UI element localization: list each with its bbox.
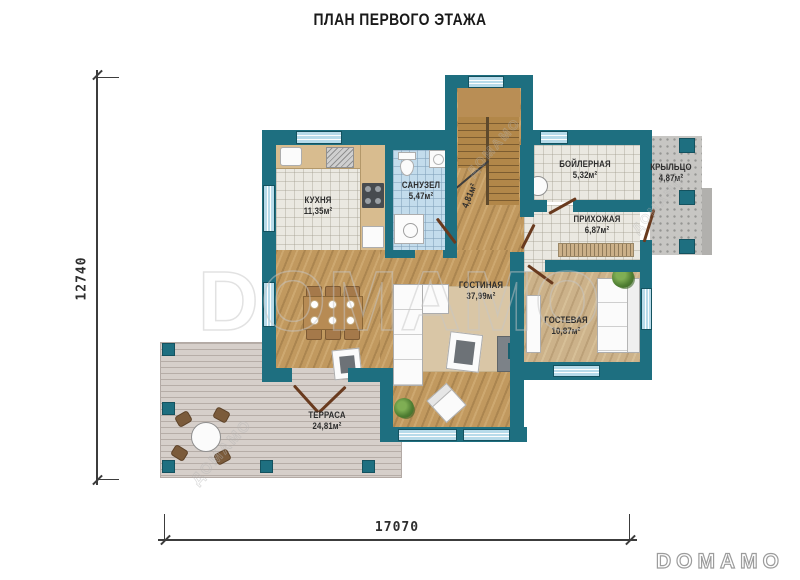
plate xyxy=(328,300,337,309)
guest-sofa xyxy=(597,278,640,353)
room-label-living: ГОСТИНАЯ 37,99м² xyxy=(459,280,503,302)
stove-burners xyxy=(365,186,371,192)
plate xyxy=(310,300,319,309)
wall xyxy=(385,143,457,150)
floor-plan-page: ПЛАН ПЕРВОГО ЭТАЖА xyxy=(0,0,800,580)
wardrobe xyxy=(526,295,541,353)
wall xyxy=(385,143,393,258)
wall xyxy=(385,250,415,258)
dimension-line-vertical xyxy=(96,70,98,485)
bath-sink xyxy=(429,150,446,168)
fridge xyxy=(362,226,384,248)
room-area: 5,32м² xyxy=(573,170,598,181)
porch-floor xyxy=(650,136,702,255)
brand-logo: DOMAMO xyxy=(656,550,784,573)
stair-flight xyxy=(458,117,486,168)
stove xyxy=(362,183,384,208)
dimension-value-height: 12740 xyxy=(75,249,90,309)
room-area: 6,87м² xyxy=(585,225,610,236)
room-name: САНУЗЕЛ xyxy=(402,180,440,191)
window xyxy=(468,76,504,88)
plate xyxy=(346,316,355,325)
sink-basin xyxy=(433,154,444,165)
room-label-boiler: БОЙЛЕРНАЯ 5,32м² xyxy=(559,159,610,181)
porch-pillar xyxy=(680,191,694,204)
coffee-table xyxy=(446,331,483,373)
plate xyxy=(310,316,319,325)
hallway-bench xyxy=(558,243,634,257)
room-area: 24,81м² xyxy=(312,421,341,432)
terrace-post xyxy=(163,403,174,414)
plant xyxy=(394,398,414,418)
room-area: 11,35м² xyxy=(304,206,333,217)
room-name: КУХНЯ xyxy=(304,195,331,206)
wall xyxy=(534,200,547,212)
wall xyxy=(262,130,276,382)
terrace-post xyxy=(261,461,272,472)
stair-landing xyxy=(458,88,520,117)
washer-door xyxy=(403,223,418,238)
dimension-value-width: 17070 xyxy=(367,520,427,535)
wall xyxy=(443,250,457,258)
room-label-guest: ГОСТЕВАЯ 10,87м² xyxy=(544,315,588,337)
room-name: ГОСТЕВАЯ xyxy=(544,315,588,326)
room-label-porch: КРЫЛЬЦО 4,87м² xyxy=(650,162,692,184)
wall xyxy=(262,368,292,382)
room-area: 10,87м² xyxy=(551,326,580,337)
window xyxy=(553,365,600,377)
dimension-extension xyxy=(164,514,165,539)
room-label-terrace: ТЕРРАСА 24,81м² xyxy=(308,410,345,432)
stair-flight xyxy=(489,117,519,205)
wall xyxy=(520,145,534,217)
room-area: 37,99м² xyxy=(466,291,495,302)
wall xyxy=(573,200,652,212)
terrace-post xyxy=(163,461,174,472)
room-name: ТЕРРАСА xyxy=(308,410,345,421)
dimension-extension xyxy=(97,479,119,480)
page-title: ПЛАН ПЕРВОГО ЭТАЖА xyxy=(72,10,728,30)
coffee-table-top xyxy=(454,340,476,365)
sofa-corner xyxy=(393,284,423,386)
wall xyxy=(545,260,652,272)
room-name: БОЙЛЕРНАЯ xyxy=(559,159,610,170)
porch-pillar xyxy=(680,139,694,152)
dimension-extension xyxy=(97,77,119,78)
guest-sofa-back xyxy=(627,279,639,352)
plate xyxy=(346,300,355,309)
room-area: 5,47м² xyxy=(409,191,434,202)
dimension-extension xyxy=(629,514,630,539)
window xyxy=(398,429,457,441)
room-label-kitchen: КУХНЯ 11,35м² xyxy=(304,195,333,217)
washing-machine xyxy=(394,214,424,244)
porch-pillar xyxy=(680,240,694,253)
window xyxy=(263,282,275,327)
room-label-bathroom: САНУЗЕЛ 5,47м² xyxy=(402,180,440,202)
terrace-post xyxy=(363,461,374,472)
window xyxy=(463,429,510,441)
window xyxy=(296,131,342,144)
dimension-line-horizontal xyxy=(158,539,637,541)
terrace-table xyxy=(191,422,221,452)
kitchen-sink xyxy=(280,147,302,166)
plate xyxy=(328,316,337,325)
window xyxy=(263,185,275,232)
window xyxy=(641,288,652,330)
wall xyxy=(510,252,524,442)
room-name: КРЫЛЬЦО xyxy=(650,162,692,173)
window xyxy=(540,131,568,144)
drying-rack xyxy=(326,147,354,168)
porch-step xyxy=(702,188,712,255)
room-label-hallway: ПРИХОЖАЯ 6,87м² xyxy=(574,214,621,236)
terrace-post xyxy=(163,344,174,355)
room-name: ПРИХОЖАЯ xyxy=(574,214,621,225)
room-name: ГОСТИНАЯ xyxy=(459,280,503,291)
room-area: 4,87м² xyxy=(659,173,684,184)
